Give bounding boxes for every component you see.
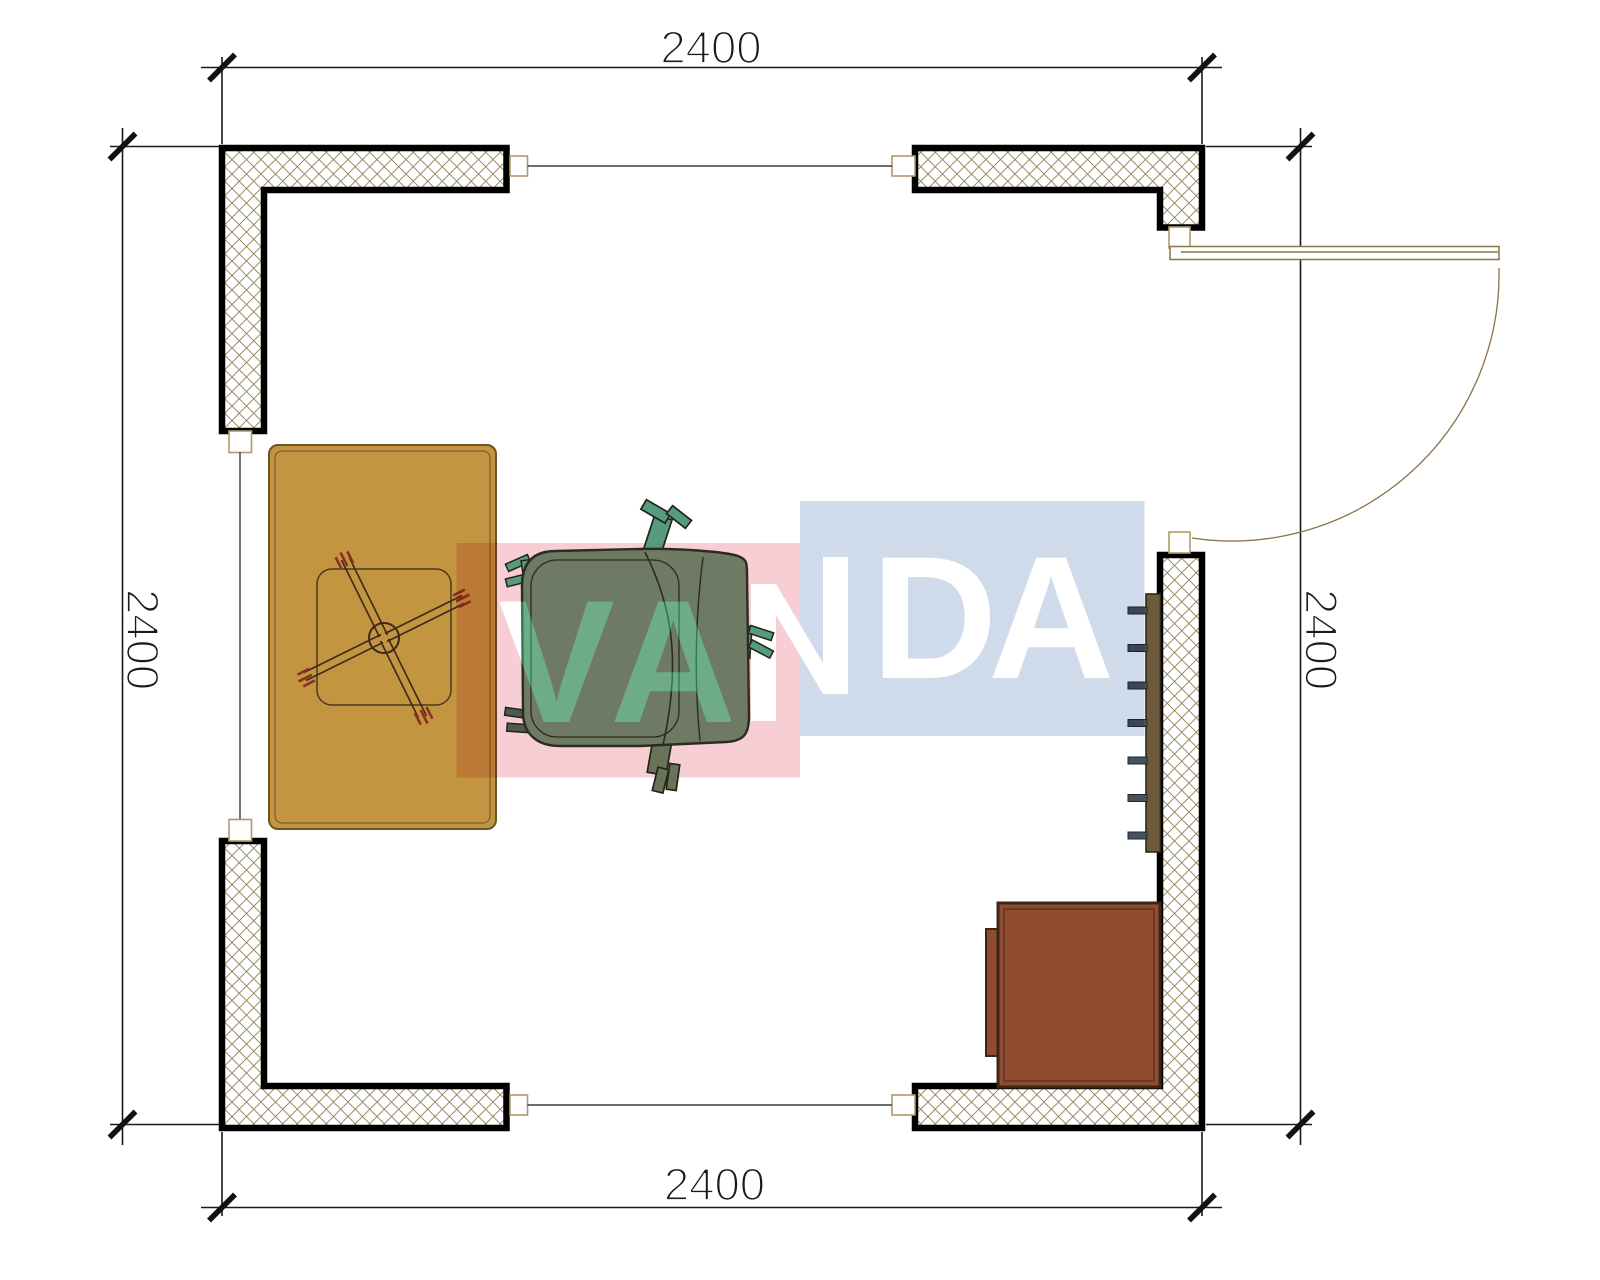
svg-text:2400: 2400 <box>117 589 168 690</box>
svg-text:A: A <box>610 565 736 760</box>
svg-text:2400: 2400 <box>660 22 761 73</box>
svg-text:V: V <box>498 565 615 760</box>
svg-text:2400: 2400 <box>664 1159 765 1210</box>
svg-text:2400: 2400 <box>1296 589 1347 690</box>
